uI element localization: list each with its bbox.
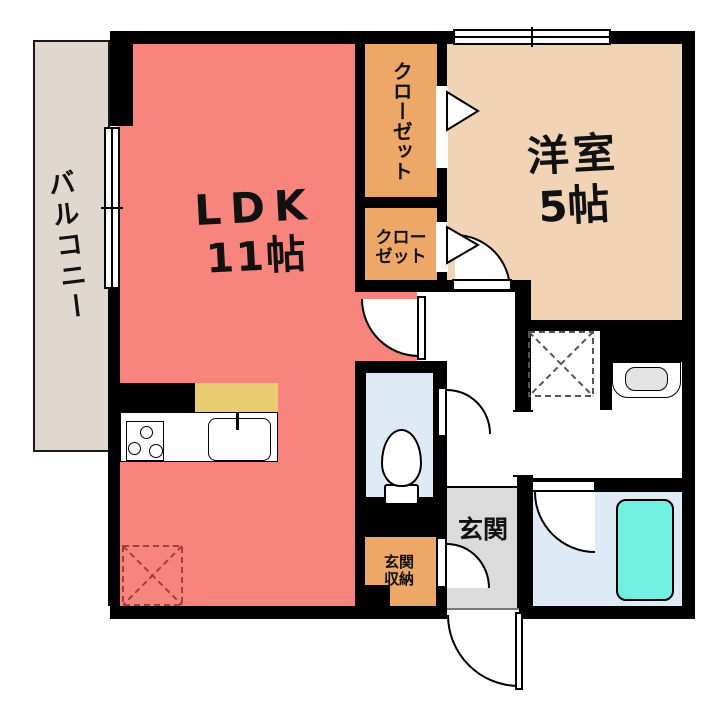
floor-plan: バルコニー LDK 11帖 洋室 5帖 クローゼット クロー ゼット 玄関 玄関… bbox=[0, 0, 721, 723]
western-room-door-leaf bbox=[452, 279, 512, 291]
wall-bottom-right bbox=[519, 606, 695, 619]
kitchen-counter-top bbox=[195, 383, 278, 413]
kitchen-sink bbox=[208, 418, 271, 461]
wall-left-corner bbox=[110, 31, 133, 126]
ldk-room bbox=[118, 44, 355, 606]
closet-upper-label: クローゼット bbox=[379, 48, 423, 194]
window-western-room bbox=[453, 29, 611, 45]
wall-right bbox=[682, 31, 695, 619]
wall-closet-divider bbox=[355, 197, 447, 208]
entrance-threshold bbox=[447, 608, 519, 610]
ldk-size-label: 11帖 bbox=[171, 230, 343, 285]
washbasin-bowl bbox=[625, 367, 668, 391]
western-room-label: 洋室 bbox=[497, 126, 649, 184]
wall-basin-block bbox=[600, 331, 683, 362]
wall-toilet-left bbox=[355, 373, 366, 505]
wall-hall-washroom-upper bbox=[515, 292, 531, 412]
toilet-bowl bbox=[381, 429, 422, 487]
kitchen-back-wall bbox=[110, 383, 195, 413]
wall-storage-left bbox=[355, 537, 365, 608]
wall-bottom-left bbox=[110, 606, 447, 619]
toilet-door-leaf bbox=[437, 387, 447, 437]
window-center-tick bbox=[531, 27, 533, 47]
bathroom-door-leaf bbox=[531, 480, 596, 492]
bathtub bbox=[616, 499, 674, 601]
entrance-storage-label: 玄関 収納 bbox=[368, 548, 430, 594]
closet-lower-label: クロー ゼット bbox=[360, 220, 442, 276]
window-center-tick bbox=[101, 207, 123, 209]
window-balcony bbox=[104, 127, 120, 289]
western-room-lower bbox=[531, 280, 682, 320]
wall-below-storage-door bbox=[436, 585, 447, 608]
western-room-size-label: 5帖 bbox=[499, 178, 649, 234]
entrance-label: 玄関 bbox=[448, 514, 518, 546]
wall-western-bottom bbox=[517, 320, 683, 331]
washroom-doorway bbox=[513, 410, 533, 477]
toilet-tank bbox=[384, 484, 419, 505]
wall-toilet-top bbox=[355, 361, 447, 373]
storage-door-leaf bbox=[436, 537, 447, 588]
front-door-arc bbox=[447, 615, 519, 687]
closet-upper-opening bbox=[436, 86, 448, 168]
ldk-label: LDK bbox=[169, 180, 341, 237]
wall-entrance-washroom bbox=[517, 477, 533, 608]
entrance-step-line bbox=[447, 486, 517, 488]
wall-basin-column bbox=[600, 362, 612, 410]
stove-burner-3 bbox=[149, 444, 163, 458]
wall-left-lower bbox=[108, 289, 120, 606]
kitchen-faucet bbox=[236, 412, 239, 430]
stove-burner-2 bbox=[128, 442, 141, 455]
front-door-leaf bbox=[515, 612, 523, 690]
ldk-door-leaf bbox=[417, 296, 426, 360]
stove-burner-1 bbox=[140, 426, 153, 439]
